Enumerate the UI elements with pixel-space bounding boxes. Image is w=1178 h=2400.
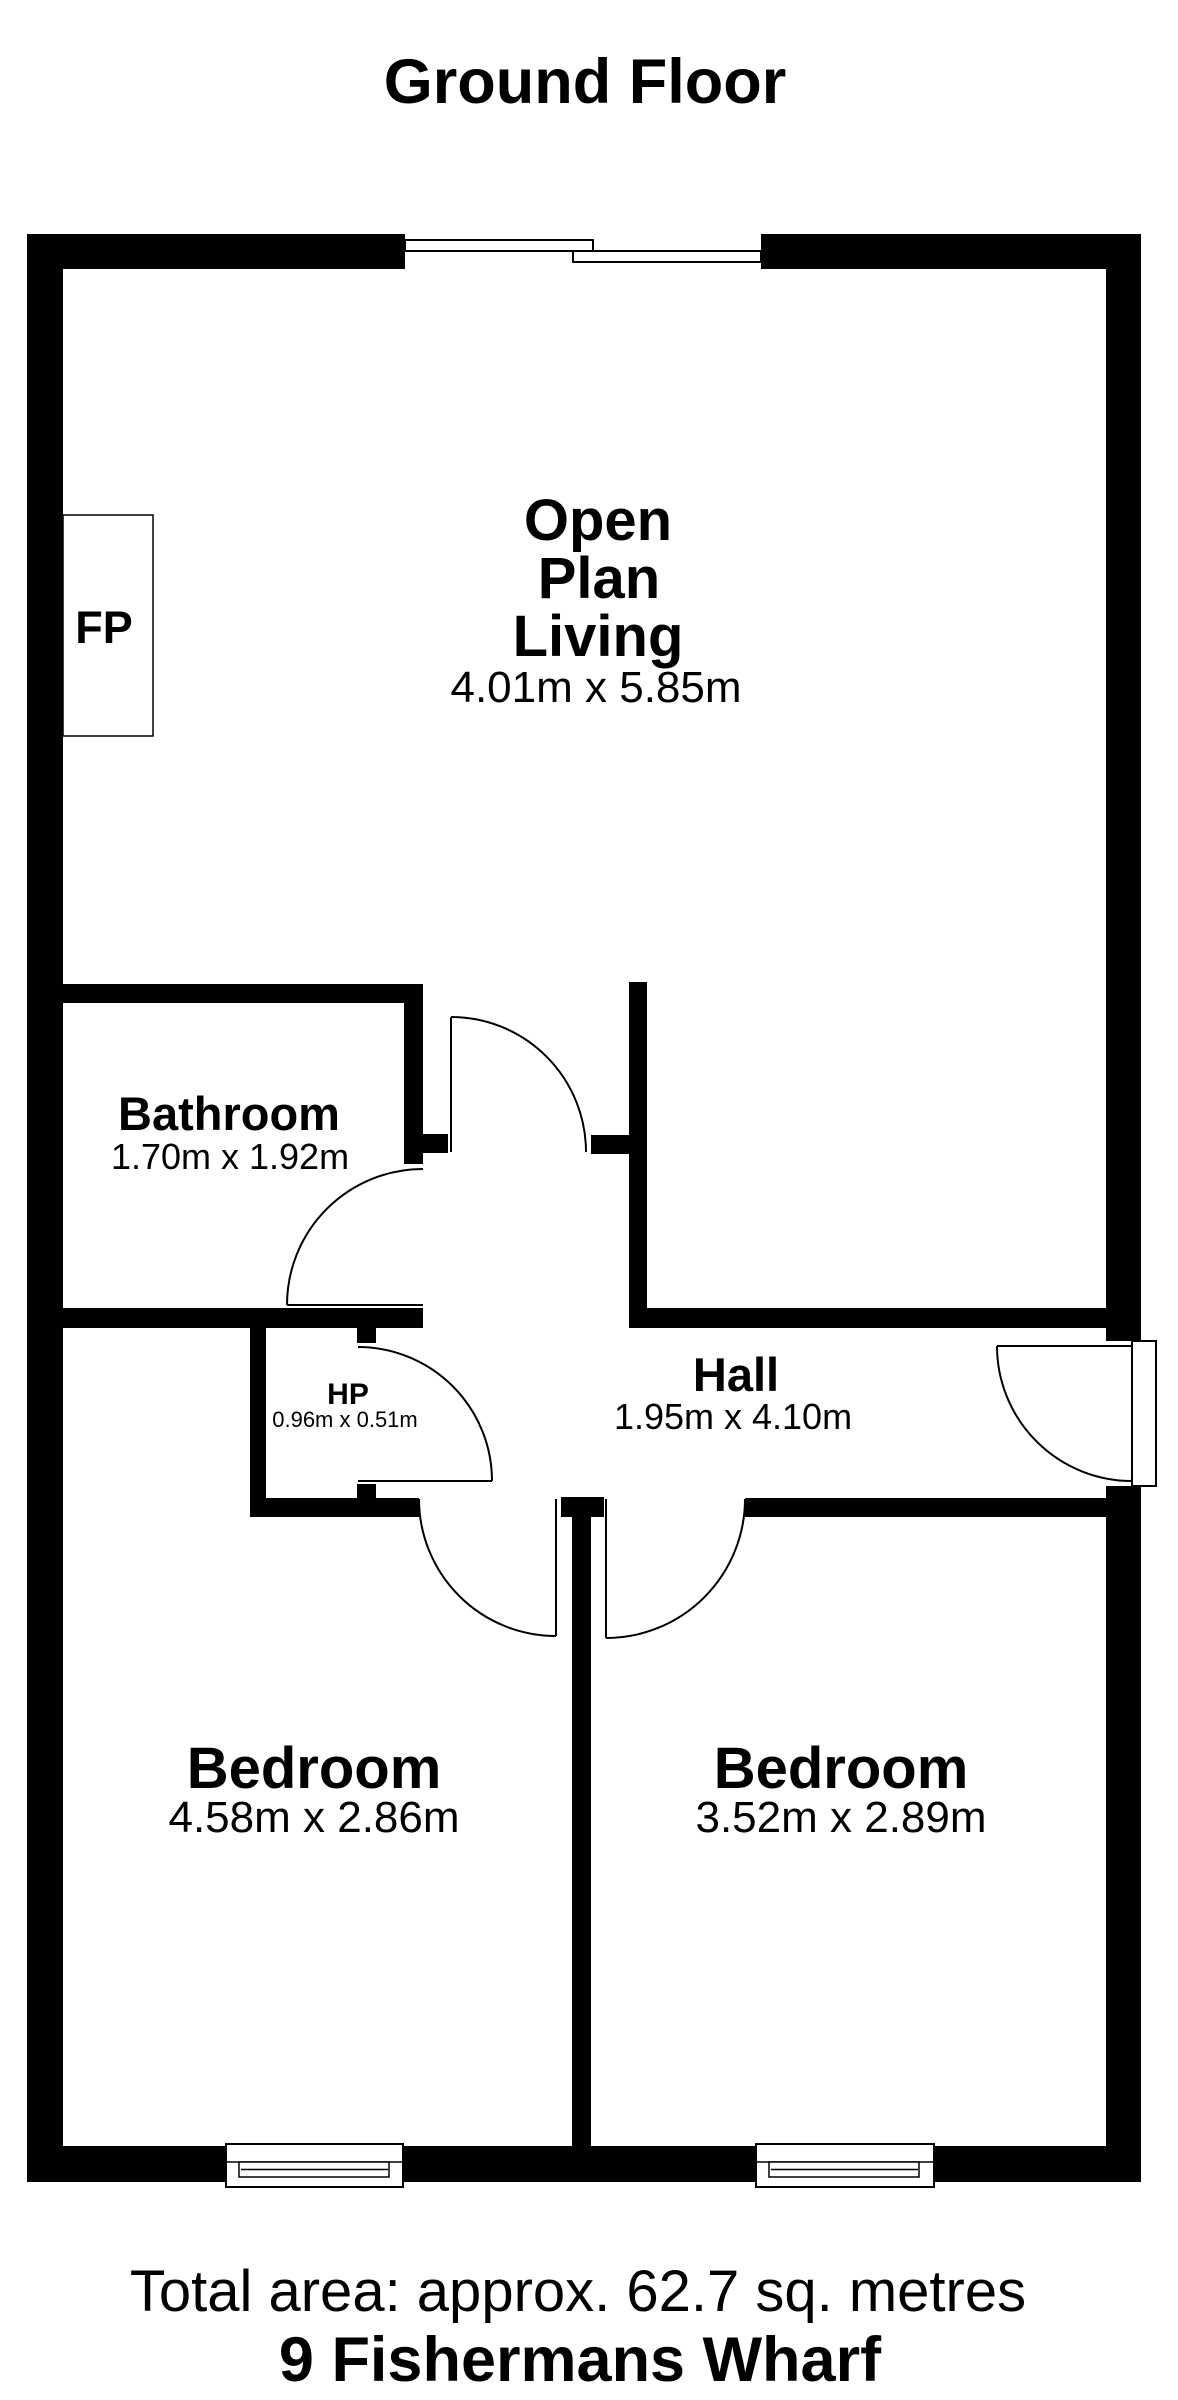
svg-text:Open: Open <box>524 488 672 553</box>
svg-text:Plan: Plan <box>538 546 661 611</box>
svg-text:Ground Floor: Ground Floor <box>384 47 786 117</box>
svg-text:4.58m x 2.86m: 4.58m x 2.86m <box>168 1793 459 1842</box>
svg-text:1.70m x 1.92m: 1.70m x 1.92m <box>111 1136 349 1177</box>
svg-text:Hall: Hall <box>693 1348 779 1401</box>
svg-text:Total area: approx. 62.7 sq. m: Total area: approx. 62.7 sq. metres <box>130 2259 1026 2324</box>
svg-text:1.95m x 4.10m: 1.95m x 4.10m <box>614 1396 852 1437</box>
svg-text:Bathroom: Bathroom <box>118 1087 340 1140</box>
svg-text:Living: Living <box>513 604 684 669</box>
svg-text:0.96m x 0.51m: 0.96m x 0.51m <box>272 1407 418 1432</box>
svg-text:FP: FP <box>75 602 133 653</box>
svg-text:Bedroom: Bedroom <box>187 1736 442 1801</box>
svg-text:Bedroom: Bedroom <box>714 1736 969 1801</box>
svg-text:9 Fishermans Wharf: 9 Fishermans Wharf <box>279 2325 882 2395</box>
svg-text:4.01m x 5.85m: 4.01m x 5.85m <box>450 663 741 712</box>
svg-text:3.52m x 2.89m: 3.52m x 2.89m <box>695 1793 986 1842</box>
